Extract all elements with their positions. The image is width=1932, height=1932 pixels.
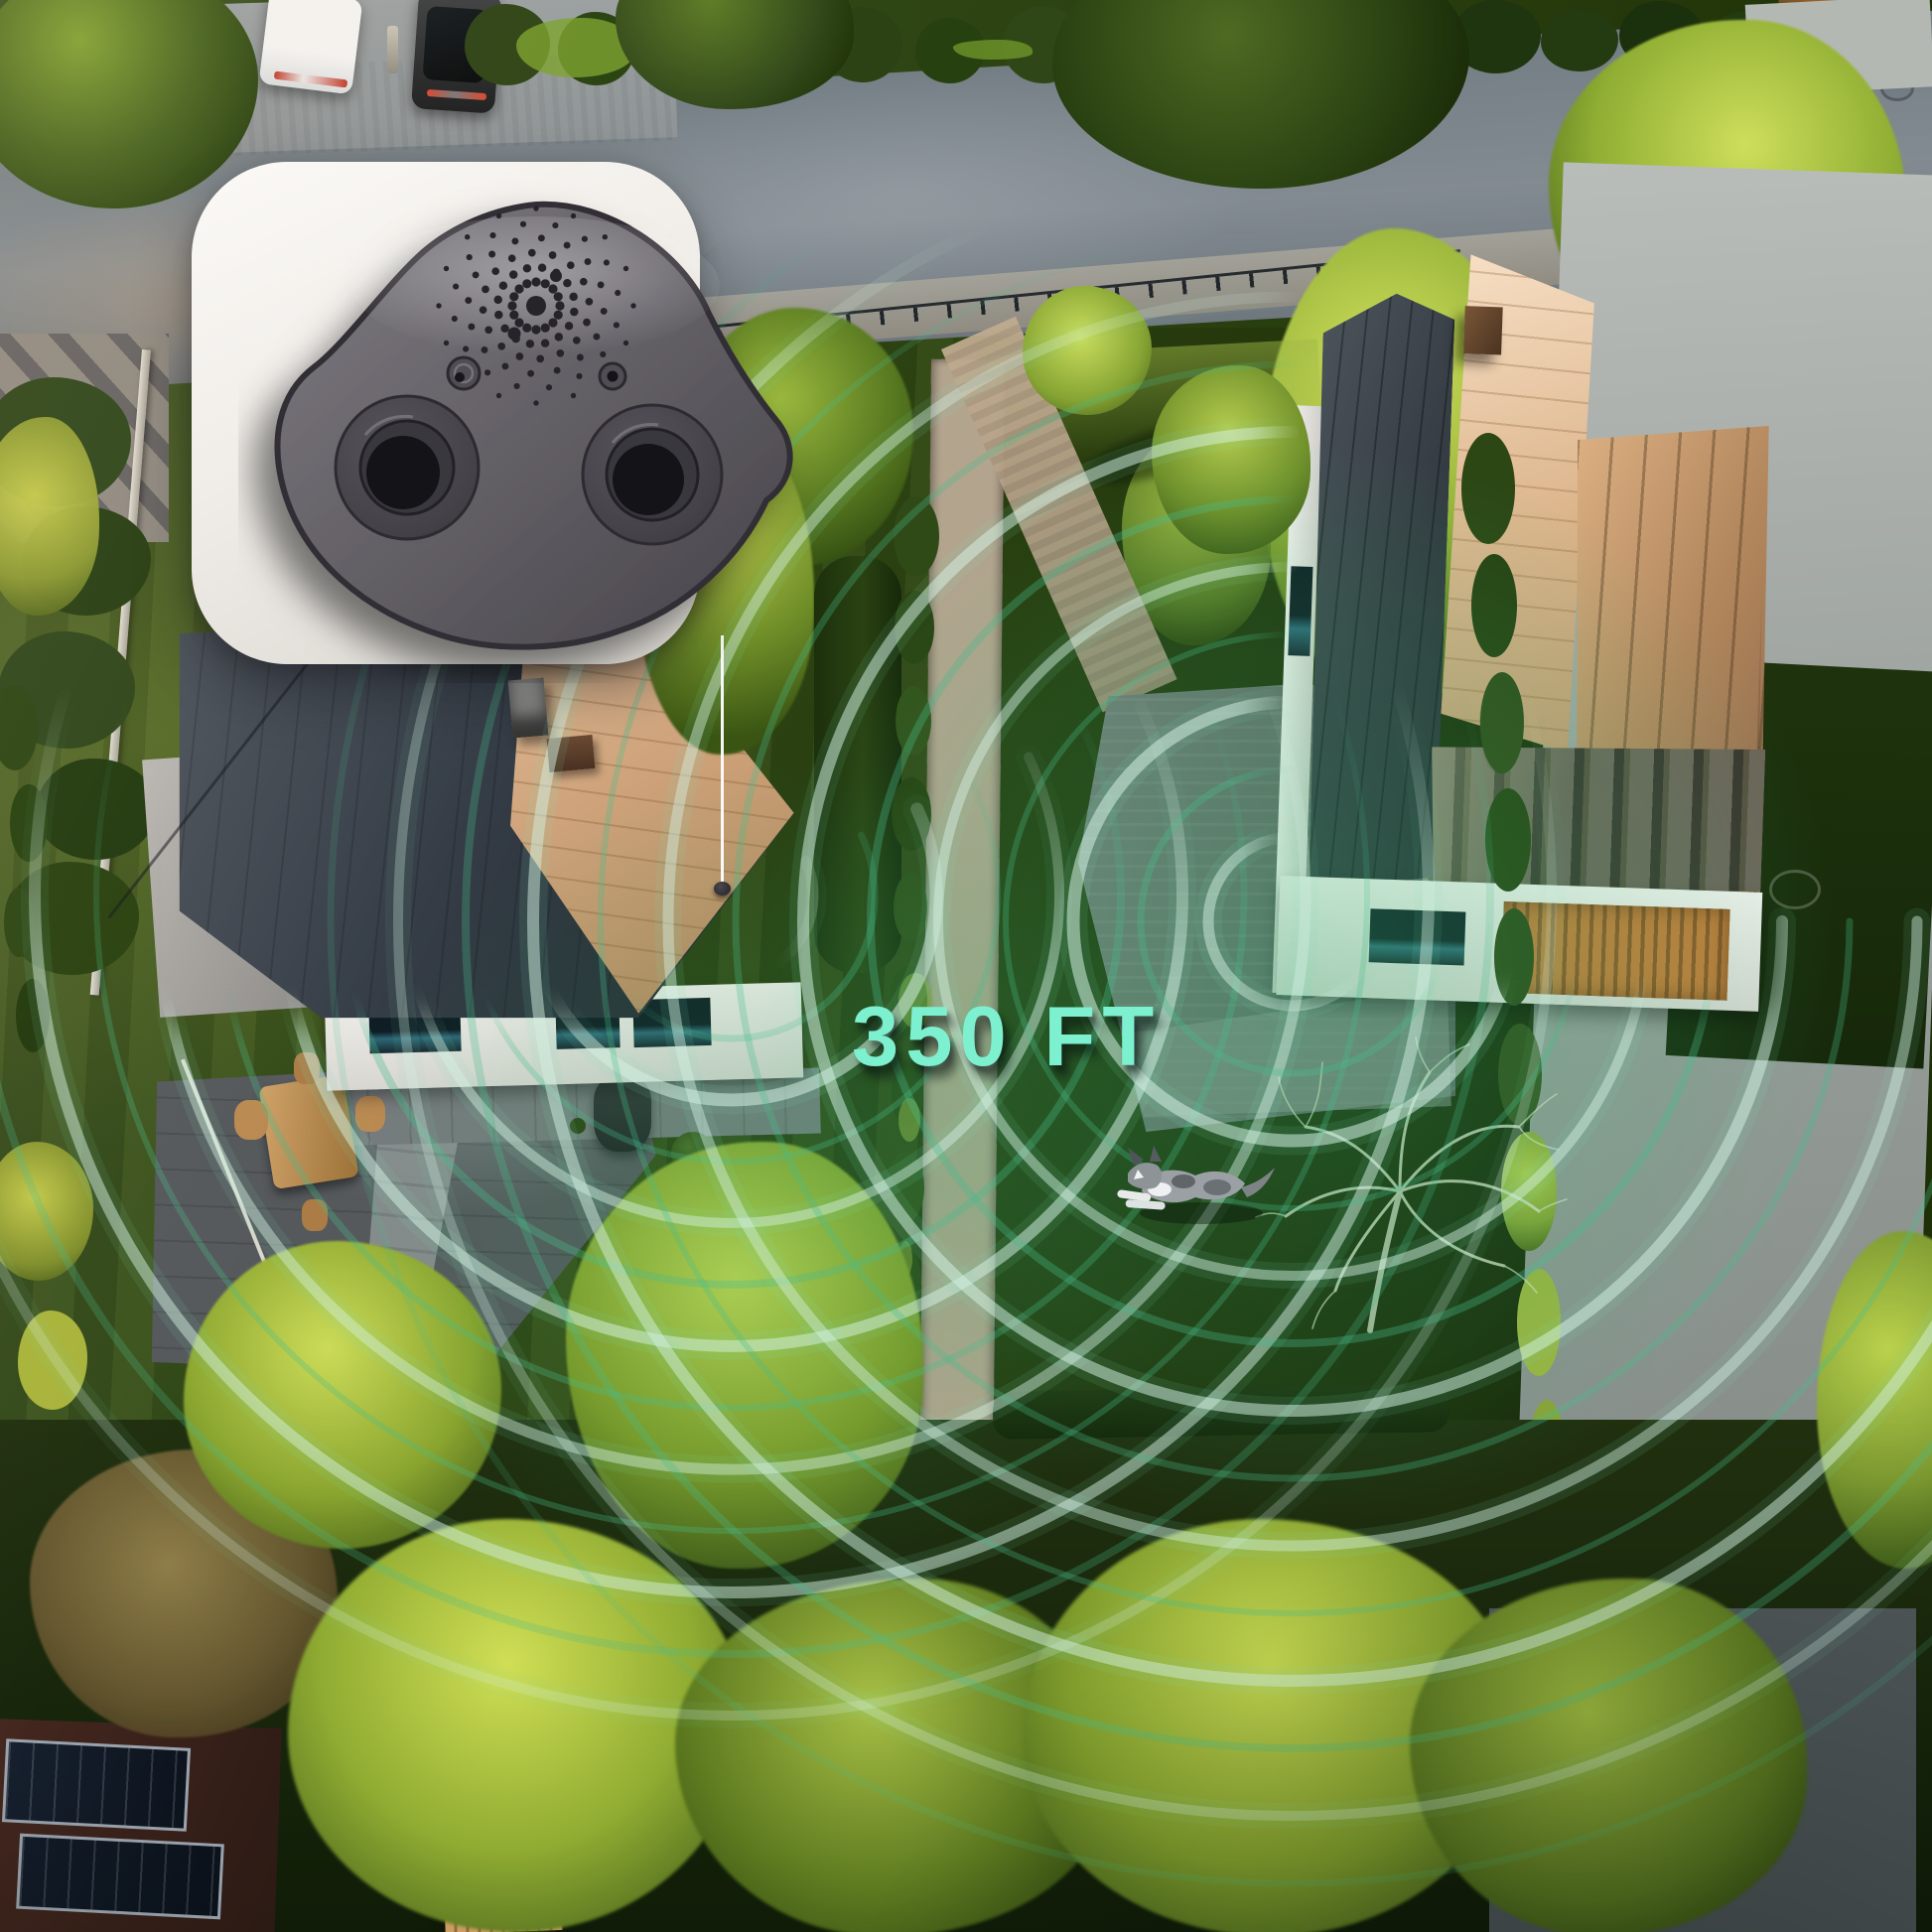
bark-control-device xyxy=(238,167,814,683)
mount-point-dot xyxy=(714,882,731,896)
ultrasonic-transducer-right xyxy=(583,405,722,544)
dog-ear xyxy=(1150,1146,1162,1162)
dog xyxy=(1114,1140,1283,1229)
dog-ear xyxy=(1128,1148,1144,1166)
aerial-marketing-scene: 350 FT xyxy=(0,0,1932,1932)
range-label: 350 FT xyxy=(852,995,1161,1079)
ultrasonic-transducer-left xyxy=(336,396,479,539)
microphone-hole-icon xyxy=(448,357,480,389)
dog-tail xyxy=(1241,1168,1275,1197)
indicator-led-icon xyxy=(600,363,625,389)
dog-head xyxy=(1128,1163,1162,1188)
